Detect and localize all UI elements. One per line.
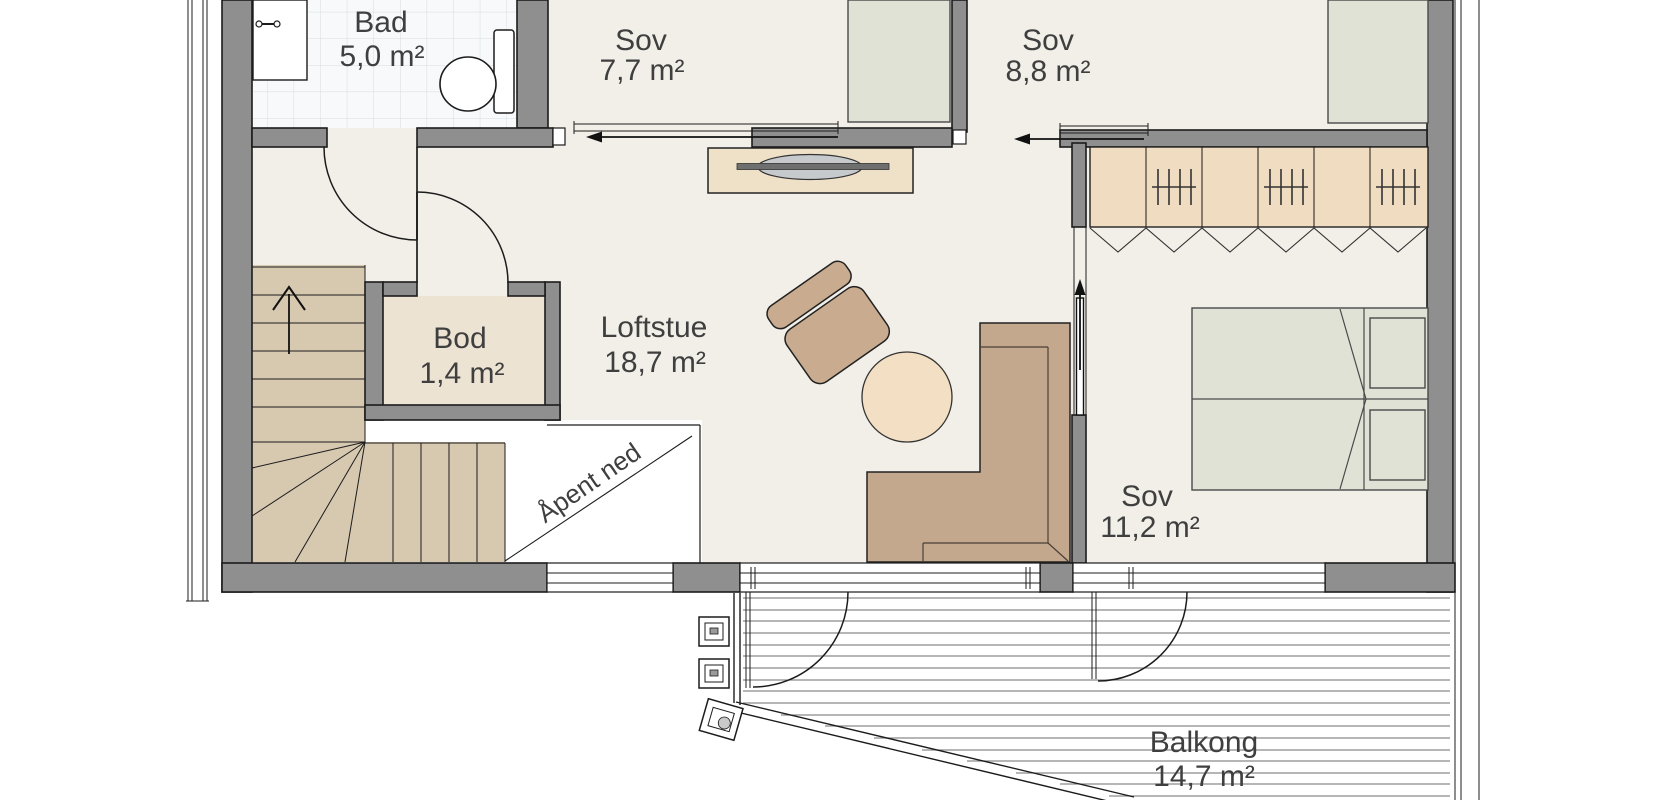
room-area-sov2: 8,8 m² xyxy=(1005,55,1090,88)
tv-sideboard xyxy=(708,148,913,193)
room-area-sov1: 7,7 m² xyxy=(599,54,684,87)
floor-plan-page: Bad 5,0 m² Sov 7,7 m² Sov 8,8 m² Bod 1,4… xyxy=(0,0,1670,800)
bed-sov1 xyxy=(848,0,950,122)
room-label-bod: Bod xyxy=(433,322,486,355)
railing-post xyxy=(699,617,729,646)
room-label-loftstue: Loftstue xyxy=(601,311,708,344)
room-label-balkong: Balkong xyxy=(1150,726,1258,759)
room-area-balkong: 14,7 m² xyxy=(1153,760,1255,793)
vanity-sink xyxy=(253,0,307,80)
south-window-bands xyxy=(547,563,1325,592)
room-area-loftstue: 18,7 m² xyxy=(604,346,706,379)
bed-sov2 xyxy=(1328,0,1428,123)
floor-plan-svg: Bad 5,0 m² Sov 7,7 m² Sov 8,8 m² Bod 1,4… xyxy=(0,0,1670,800)
room-area-bad: 5,0 m² xyxy=(339,40,424,73)
railing-post xyxy=(699,659,729,688)
room-label-sov1: Sov xyxy=(615,24,667,57)
round-table xyxy=(862,352,952,442)
double-bed-sov3 xyxy=(1192,308,1428,490)
room-area-sov3: 11,2 m² xyxy=(1100,511,1199,544)
room-area-bod: 1,4 m² xyxy=(419,357,504,390)
room-label-sov2: Sov xyxy=(1022,24,1074,57)
room-label-sov3: Sov xyxy=(1121,480,1173,513)
room-label-bad: Bad xyxy=(354,6,407,39)
